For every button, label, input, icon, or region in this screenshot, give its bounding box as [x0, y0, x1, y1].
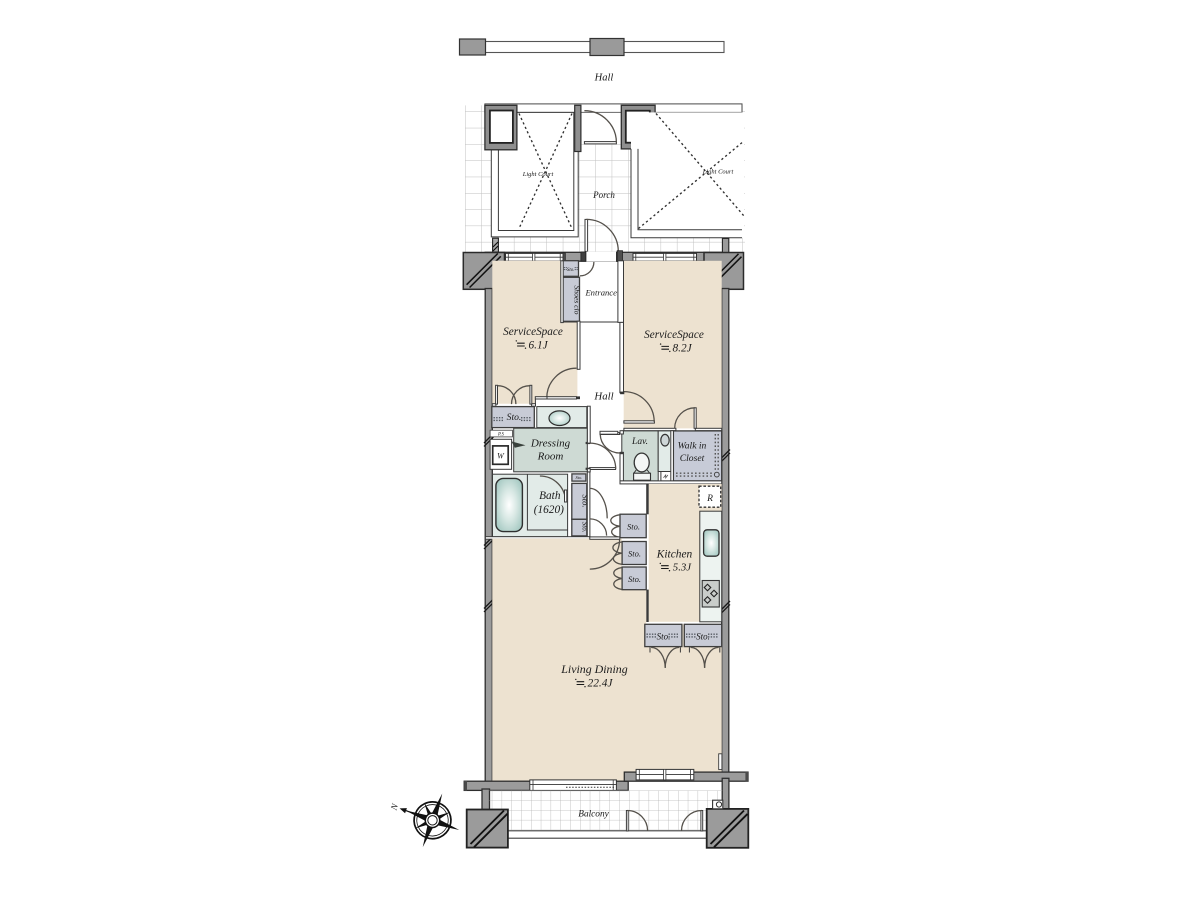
svg-text:Sto.: Sto.	[507, 412, 522, 423]
svg-text:Kitchen: Kitchen	[656, 549, 693, 561]
svg-text:Shoes clo: Shoes clo	[573, 286, 582, 315]
svg-text:Sto.: Sto.	[628, 549, 641, 559]
svg-text:Closet: Closet	[680, 453, 705, 464]
svg-text:Sto.: Sto.	[628, 574, 641, 584]
svg-text:5.3J: 5.3J	[673, 562, 692, 574]
svg-text:Lav.: Lav.	[631, 437, 648, 447]
svg-text:Sto.: Sto.	[575, 475, 582, 480]
svg-text:Dressing: Dressing	[530, 438, 571, 450]
svg-text:22.4J: 22.4J	[588, 678, 614, 690]
svg-text:ServiceSpace: ServiceSpace	[644, 329, 704, 341]
svg-text:Sto.: Sto.	[696, 632, 710, 642]
svg-text:Sto.: Sto.	[567, 268, 575, 273]
svg-text:8.2J: 8.2J	[673, 343, 693, 355]
svg-text:Hall: Hall	[593, 391, 613, 403]
svg-text:Bath: Bath	[539, 490, 561, 502]
svg-text:ServiceSpace: ServiceSpace	[503, 326, 563, 338]
svg-text:Hall: Hall	[594, 73, 614, 84]
svg-text:Light Court: Light Court	[702, 169, 734, 176]
svg-text:Balcony: Balcony	[578, 810, 609, 820]
svg-text:Walk in: Walk in	[678, 441, 707, 452]
svg-text:Room: Room	[537, 451, 564, 463]
svg-text:P.S: P.S	[497, 433, 505, 438]
svg-text:Light Court: Light Court	[522, 171, 554, 178]
svg-text:Sto.: Sto.	[627, 522, 640, 532]
svg-text:(1620): (1620)	[534, 504, 564, 516]
svg-text:Entrance: Entrance	[584, 287, 617, 297]
svg-text:Sto.: Sto.	[657, 632, 671, 642]
svg-text:6.1J: 6.1J	[529, 340, 549, 352]
svg-text:Porch: Porch	[592, 190, 615, 200]
svg-text:R: R	[706, 494, 713, 504]
svg-text:Living Dining: Living Dining	[560, 662, 627, 676]
